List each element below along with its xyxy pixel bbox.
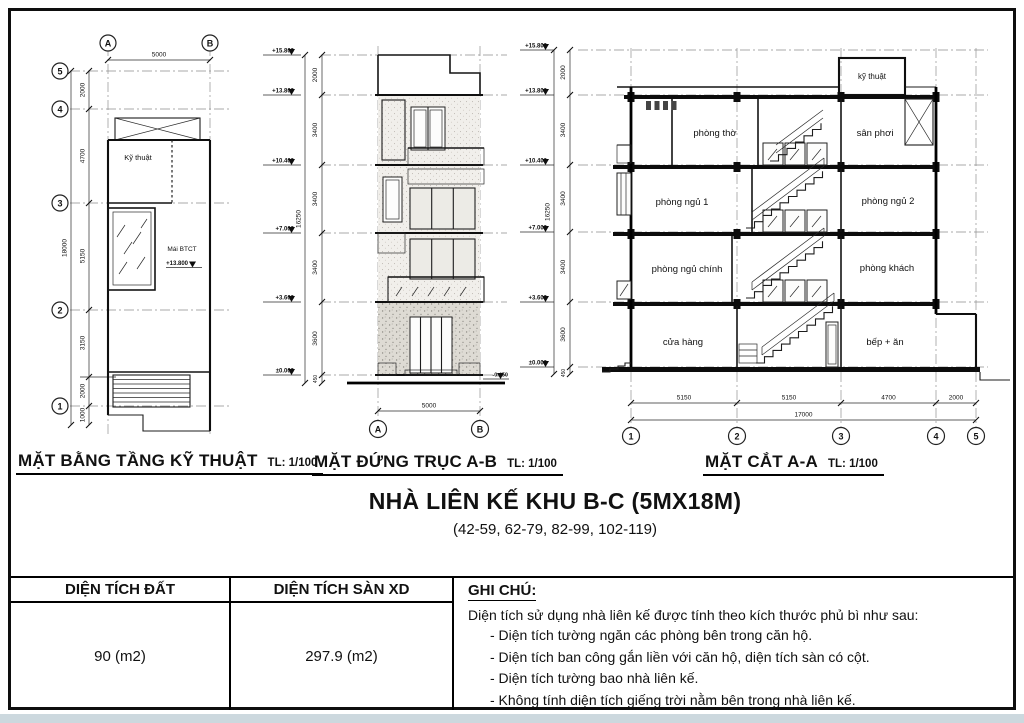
land-area-header: DIỆN TÍCH ĐẤT — [11, 578, 229, 603]
svg-text:A: A — [375, 425, 382, 435]
svg-text:phòng ngủ 2: phòng ngủ 2 — [862, 196, 915, 207]
svg-text:1: 1 — [57, 402, 62, 412]
parapet — [378, 55, 480, 95]
svg-text:5000: 5000 — [422, 403, 437, 410]
svg-text:phòng ngủ 1: phòng ngủ 1 — [656, 197, 709, 208]
svg-text:2000: 2000 — [560, 65, 567, 80]
svg-text:2000: 2000 — [312, 67, 319, 82]
svg-text:18000: 18000 — [62, 239, 69, 257]
section-left-balconies — [602, 145, 631, 372]
ground-slab — [602, 367, 980, 372]
elevation-view: +15.800 +13.800 +10.400 +7.000 +3.600 ±0… — [255, 22, 520, 442]
svg-text:3400: 3400 — [560, 122, 567, 137]
svg-text:+10.400: +10.400 — [272, 159, 295, 165]
svg-text:B: B — [477, 425, 484, 435]
plan-grid-bubbles: A B 5 4 3 2 1 — [52, 35, 218, 414]
note-line: - Không tính diện tích giếng trời nằm bê… — [468, 690, 1001, 712]
right-level-marker: -0.450 — [483, 373, 509, 380]
svg-text:16250: 16250 — [545, 203, 552, 221]
drawing-sheet: Kỹ thuật Mái BTCT +13.800 5000 2000 4700… — [0, 0, 1024, 723]
svg-text:3: 3 — [838, 432, 843, 442]
floor-area-value: 297.9 (m2) — [231, 603, 452, 710]
section-view: phòng thờ sân phơi kỹ thuật phòng ngủ 1 … — [518, 22, 1018, 452]
svg-text:4700: 4700 — [881, 395, 896, 402]
svg-text:3600: 3600 — [560, 327, 567, 342]
svg-text:phòng khách: phòng khách — [860, 263, 914, 274]
plan-dimension-chain: 2000 4700 5150 3150 2000 1000 18000 — [62, 68, 93, 428]
svg-text:5150: 5150 — [677, 395, 692, 402]
svg-text:+3.600: +3.600 — [275, 296, 294, 302]
svg-text:3400: 3400 — [312, 122, 319, 137]
svg-text:-0.450: -0.450 — [492, 373, 508, 379]
svg-text:3400: 3400 — [560, 191, 567, 206]
windows-3f — [410, 188, 475, 229]
elevation-dimension-chain: 2000 3400 3400 3400 3600 450 16250 — [296, 52, 326, 386]
floor-area-cell: DIỆN TÍCH SÀN XD 297.9 (m2) — [231, 578, 454, 710]
plan-roof-level-marker: Mái BTCT +13.800 — [166, 246, 202, 268]
svg-text:+13.800: +13.800 — [272, 89, 295, 95]
svg-text:1: 1 — [628, 432, 633, 442]
svg-text:4: 4 — [933, 432, 938, 442]
svg-text:B: B — [207, 39, 214, 49]
plan-top-dimension: 5000 — [105, 52, 213, 64]
plan-room-label: Kỹ thuật — [124, 153, 152, 162]
notes-intro: Diện tích sử dụng nhà liên kế được tính … — [468, 607, 1001, 623]
svg-text:cửa hàng: cửa hàng — [663, 337, 703, 348]
floor-area-header: DIỆN TÍCH SÀN XD — [231, 578, 452, 603]
svg-text:2: 2 — [734, 432, 739, 442]
svg-text:2: 2 — [57, 306, 62, 316]
svg-text:+7.000: +7.000 — [528, 226, 547, 232]
land-area-cell: DIỆN TÍCH ĐẤT 90 (m2) — [11, 578, 231, 710]
svg-text:+13.800: +13.800 — [166, 261, 189, 267]
svg-text:3400: 3400 — [312, 260, 319, 275]
elevation-facade — [347, 55, 505, 383]
svg-text:+7.000: +7.000 — [275, 227, 294, 233]
svg-text:3150: 3150 — [80, 335, 87, 350]
section-dimension-chain: 2000 3400 3400 3400 3600 450 16250 — [545, 47, 574, 377]
svg-text:sân phơi: sân phơi — [857, 128, 894, 139]
windows-2f — [410, 239, 475, 279]
page-edge — [0, 714, 1024, 723]
plan-title: MẶT BẰNG TẦNG KỸ THUẬTTL: 1/100 — [16, 451, 323, 475]
svg-text:Mái BTCT: Mái BTCT — [167, 246, 196, 253]
svg-text:5: 5 — [57, 67, 62, 77]
elevation-bottom-dimension: 5000 A B — [370, 403, 489, 438]
svg-text:1000: 1000 — [80, 407, 87, 422]
svg-text:3400: 3400 — [560, 259, 567, 274]
svg-text:+10.400: +10.400 — [525, 159, 548, 165]
svg-text:phòng thờ: phòng thờ — [693, 128, 736, 139]
svg-text:4700: 4700 — [80, 148, 87, 163]
svg-text:5: 5 — [973, 432, 978, 442]
svg-text:450: 450 — [561, 369, 567, 378]
svg-text:bếp + ăn: bếp + ăn — [866, 337, 903, 348]
plan-view: Kỹ thuật Mái BTCT +13.800 5000 2000 4700… — [20, 22, 250, 447]
svg-text:+3.600: +3.600 — [528, 296, 547, 302]
svg-text:kỹ thuật: kỹ thuật — [858, 72, 887, 81]
notes-header: GHI CHÚ: — [468, 582, 536, 601]
svg-text:±0.000: ±0.000 — [276, 369, 295, 375]
svg-text:2000: 2000 — [80, 383, 87, 398]
svg-text:3400: 3400 — [312, 191, 319, 206]
note-line: - Diện tích tường ngăn các phòng bên tro… — [468, 625, 1001, 647]
section-title: MẶT CẮT A-ATL: 1/100 — [703, 452, 884, 476]
svg-text:5000: 5000 — [152, 52, 167, 59]
sheet-main-title: NHÀ LIÊN KẾ KHU B-C (5MX18M) — [190, 488, 920, 515]
sheet-subtitle: (42-59, 62-79, 82-99, 102-119) — [190, 521, 920, 538]
svg-text:2000: 2000 — [949, 395, 964, 402]
svg-text:3600: 3600 — [312, 331, 319, 346]
svg-text:3: 3 — [57, 199, 62, 209]
svg-text:2000: 2000 — [80, 82, 87, 97]
rear-extension — [936, 314, 976, 372]
area-table: DIỆN TÍCH ĐẤT 90 (m2) DIỆN TÍCH SÀN XD 2… — [11, 576, 1013, 710]
svg-text:17000: 17000 — [794, 412, 812, 419]
svg-text:5150: 5150 — [80, 248, 87, 263]
skylight — [108, 208, 155, 290]
svg-text:+15.800: +15.800 — [272, 49, 295, 55]
land-area-value: 90 (m2) — [11, 603, 229, 710]
svg-text:phòng ngủ chính: phòng ngủ chính — [652, 264, 723, 275]
svg-text:A: A — [105, 39, 112, 49]
svg-text:450: 450 — [313, 375, 319, 384]
svg-text:16250: 16250 — [296, 210, 303, 228]
svg-text:5150: 5150 — [782, 395, 797, 402]
svg-text:±0.000: ±0.000 — [529, 361, 548, 367]
note-line: - Diện tích tường bao nhà liên kế. — [468, 668, 1001, 690]
note-line: - Diện tích ban công gắn liền với căn hộ… — [468, 647, 1001, 669]
svg-text:Kỹ thuật: Kỹ thuật — [124, 153, 152, 162]
notes-cell: GHI CHÚ: Diện tích sử dụng nhà liên kế đ… — [454, 578, 1013, 710]
svg-text:+13.800: +13.800 — [525, 89, 548, 95]
elevation-title: MẶT ĐỨNG TRỤC A-BTL: 1/100 — [312, 452, 563, 476]
plan-building — [108, 118, 210, 431]
svg-text:+15.800: +15.800 — [525, 44, 548, 50]
svg-text:4: 4 — [57, 105, 62, 115]
section-bottom-dimensions: 5150 5150 4700 2000 17000 1 2 3 4 5 — [623, 395, 985, 445]
